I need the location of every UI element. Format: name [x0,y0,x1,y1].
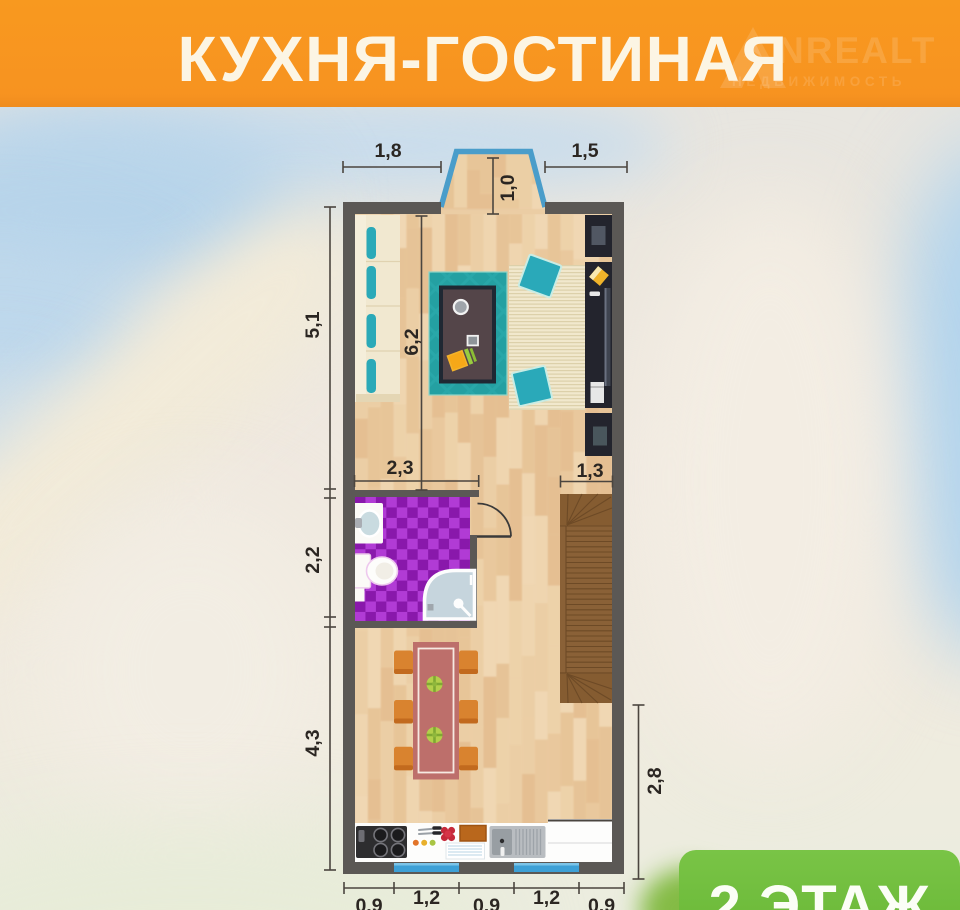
svg-text:4,3: 4,3 [302,729,324,756]
svg-text:0,9: 0,9 [473,895,500,910]
svg-text:0,9: 0,9 [588,895,615,910]
svg-text:1,2: 1,2 [413,887,440,909]
svg-text:1,5: 1,5 [571,140,598,162]
svg-text:1,0: 1,0 [497,174,519,201]
svg-text:5,1: 5,1 [302,311,324,338]
svg-text:0,9: 0,9 [355,895,382,910]
svg-text:1,8: 1,8 [374,140,401,162]
svg-text:2,2: 2,2 [302,546,324,573]
svg-text:1,2: 1,2 [533,887,560,909]
svg-text:6,2: 6,2 [401,328,423,355]
svg-text:2,8: 2,8 [644,767,666,794]
svg-text:1,3: 1,3 [576,460,603,482]
svg-text:2,3: 2,3 [386,457,413,479]
